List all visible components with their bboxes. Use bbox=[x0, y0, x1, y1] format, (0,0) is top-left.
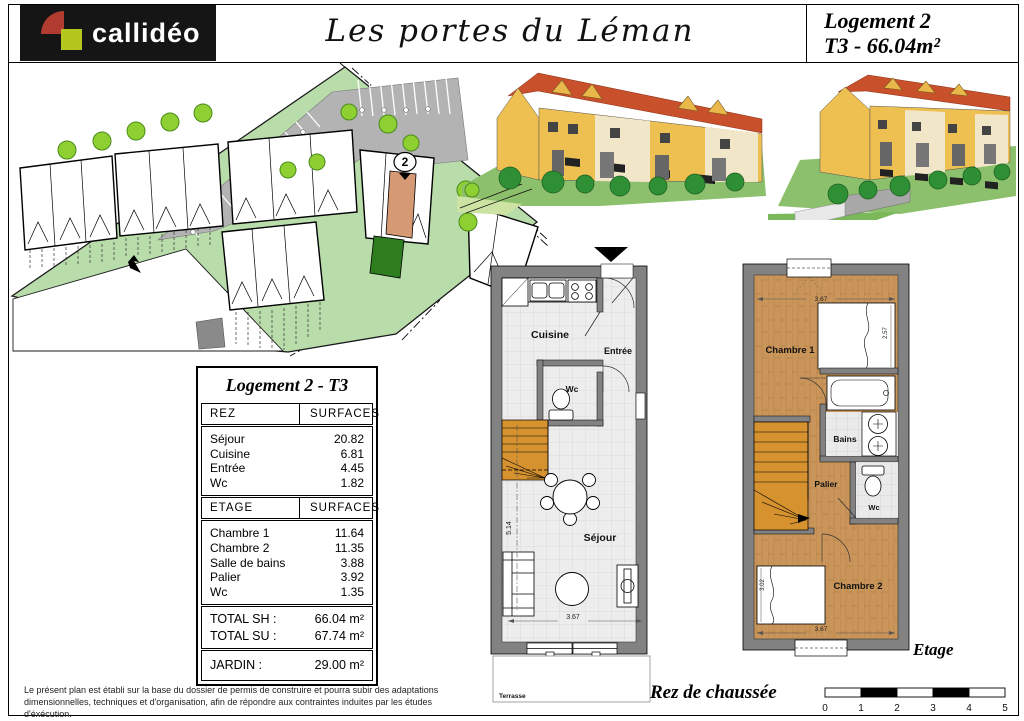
label-wc-upper: Wc bbox=[868, 503, 879, 512]
3d-renders bbox=[455, 70, 1020, 220]
dim-right: 2.57 bbox=[883, 327, 889, 339]
entry-door-opening bbox=[601, 264, 633, 278]
dim-top: 3.67 bbox=[815, 296, 828, 303]
total-sh-row: TOTAL SH :66.04 m² bbox=[210, 611, 364, 628]
etage-rows: Chambre 111.64 Chambre 211.35 Salle de b… bbox=[201, 520, 373, 605]
render-left bbox=[457, 73, 766, 215]
caption-etage: Etage bbox=[913, 640, 954, 660]
sofa-icon bbox=[503, 552, 534, 616]
label-chambre2: Chambre 2 bbox=[833, 581, 882, 592]
table-row: Palier3.92 bbox=[210, 570, 364, 585]
bottom-window-upper bbox=[795, 640, 847, 656]
disclaimer: Le présent plan est établi sur la base d… bbox=[24, 684, 454, 720]
stove-icon bbox=[568, 280, 596, 302]
table-row: Chambre 111.64 bbox=[210, 526, 364, 541]
render-right bbox=[768, 75, 1016, 220]
tv-cabinet bbox=[617, 565, 638, 607]
label-cuisine: Cuisine bbox=[531, 329, 569, 341]
unit-name: Logement 2 bbox=[824, 8, 940, 33]
total-su-row: TOTAL SU :67.74 m² bbox=[210, 628, 364, 645]
table-row: Cuisine6.81 bbox=[210, 447, 364, 462]
unit2-garden bbox=[370, 236, 404, 278]
surface-table: Logement 2 - T3 REZ SURFACES Séjour20.82… bbox=[196, 366, 378, 686]
etage-header: ETAGE SURFACES bbox=[201, 497, 373, 519]
double-sink-icon bbox=[862, 412, 896, 456]
stairs bbox=[502, 420, 548, 480]
coffee-table bbox=[556, 573, 589, 606]
caption-rez-de-chaussee: Rez de chaussée bbox=[650, 682, 777, 704]
ground-floor-plan: 5.14 3.67 Cuisine Entrée Wc Séjour Terra… bbox=[485, 240, 655, 710]
svg-text:5: 5 bbox=[1002, 703, 1008, 714]
logo-wordmark: callidéo bbox=[92, 18, 201, 49]
label-wc: Wc bbox=[566, 384, 579, 394]
dim-width: 3.67 bbox=[566, 614, 580, 621]
label-palier: Palier bbox=[814, 479, 838, 489]
unit2-badge-number: 2 bbox=[402, 155, 409, 169]
bathtub-icon bbox=[827, 376, 895, 410]
upper-floor-plan: 3.67 2.57 3.02 3.67 Chambre 1 Bains Pali… bbox=[735, 255, 920, 665]
disclaimer-line1: Le présent plan est établi sur la base d… bbox=[24, 684, 454, 696]
table-row: Wc1.35 bbox=[210, 585, 364, 600]
label-entree: Entrée bbox=[604, 346, 632, 356]
dim-bottom: 3.67 bbox=[815, 626, 828, 633]
table-row: Salle de bains3.88 bbox=[210, 556, 364, 571]
svg-text:2: 2 bbox=[894, 703, 900, 714]
label-bains: Bains bbox=[833, 434, 856, 444]
disclaimer-line2: dimensionnelles, techniques et d'organis… bbox=[24, 696, 454, 720]
rez-header: REZ SURFACES bbox=[201, 403, 373, 425]
callideo-logo: callidéo bbox=[20, 5, 216, 61]
surface-table-title: Logement 2 - T3 bbox=[200, 370, 374, 402]
stairs-upper bbox=[754, 422, 810, 530]
header-divider bbox=[806, 5, 807, 62]
table-row: Chambre 211.35 bbox=[210, 541, 364, 556]
unit-title: Logement 2 T3 - 66.04m² bbox=[824, 8, 940, 58]
table-row: Wc1.82 bbox=[210, 476, 364, 491]
rez-rows: Séjour20.82 Cuisine6.81 Entrée4.45 Wc1.8… bbox=[201, 426, 373, 496]
label-sejour: Séjour bbox=[584, 532, 617, 544]
svg-text:4: 4 bbox=[966, 703, 972, 714]
table-row: Séjour20.82 bbox=[210, 432, 364, 447]
label-terrasse: Terrasse bbox=[499, 693, 526, 700]
unit2-highlight bbox=[386, 171, 416, 238]
kitchen-counter bbox=[502, 278, 597, 306]
bed2-icon bbox=[757, 566, 825, 624]
entrance-arrow bbox=[594, 247, 628, 262]
label-chambre1: Chambre 1 bbox=[765, 345, 815, 356]
svg-text:3: 3 bbox=[930, 703, 936, 714]
scale-bar: 0 1 2 3 4 5 bbox=[820, 684, 1012, 716]
jardin-section: JARDIN :29.00 m² bbox=[201, 650, 373, 681]
table-row: Entrée4.45 bbox=[210, 461, 364, 476]
unit-type-area: T3 - 66.04m² bbox=[824, 33, 940, 58]
jardin-row: JARDIN :29.00 m² bbox=[210, 658, 364, 673]
svg-text:1: 1 bbox=[858, 703, 864, 714]
svg-text:0: 0 bbox=[822, 703, 828, 714]
site-gray-patch bbox=[196, 318, 225, 349]
plan-sheet: callidéo Les portes du Léman Logement 2 … bbox=[0, 0, 1024, 721]
scale-ticks: 0 1 2 3 4 5 bbox=[822, 703, 1008, 714]
dim-height: 5.14 bbox=[506, 521, 513, 535]
logo-green-square bbox=[61, 29, 82, 50]
bay-windows bbox=[527, 643, 617, 657]
project-title: Les portes du Léman bbox=[220, 13, 800, 49]
dim-left: 3.02 bbox=[760, 579, 766, 591]
totals-section: TOTAL SH :66.04 m² TOTAL SU :67.74 m² bbox=[201, 606, 373, 649]
radiator bbox=[636, 393, 645, 419]
